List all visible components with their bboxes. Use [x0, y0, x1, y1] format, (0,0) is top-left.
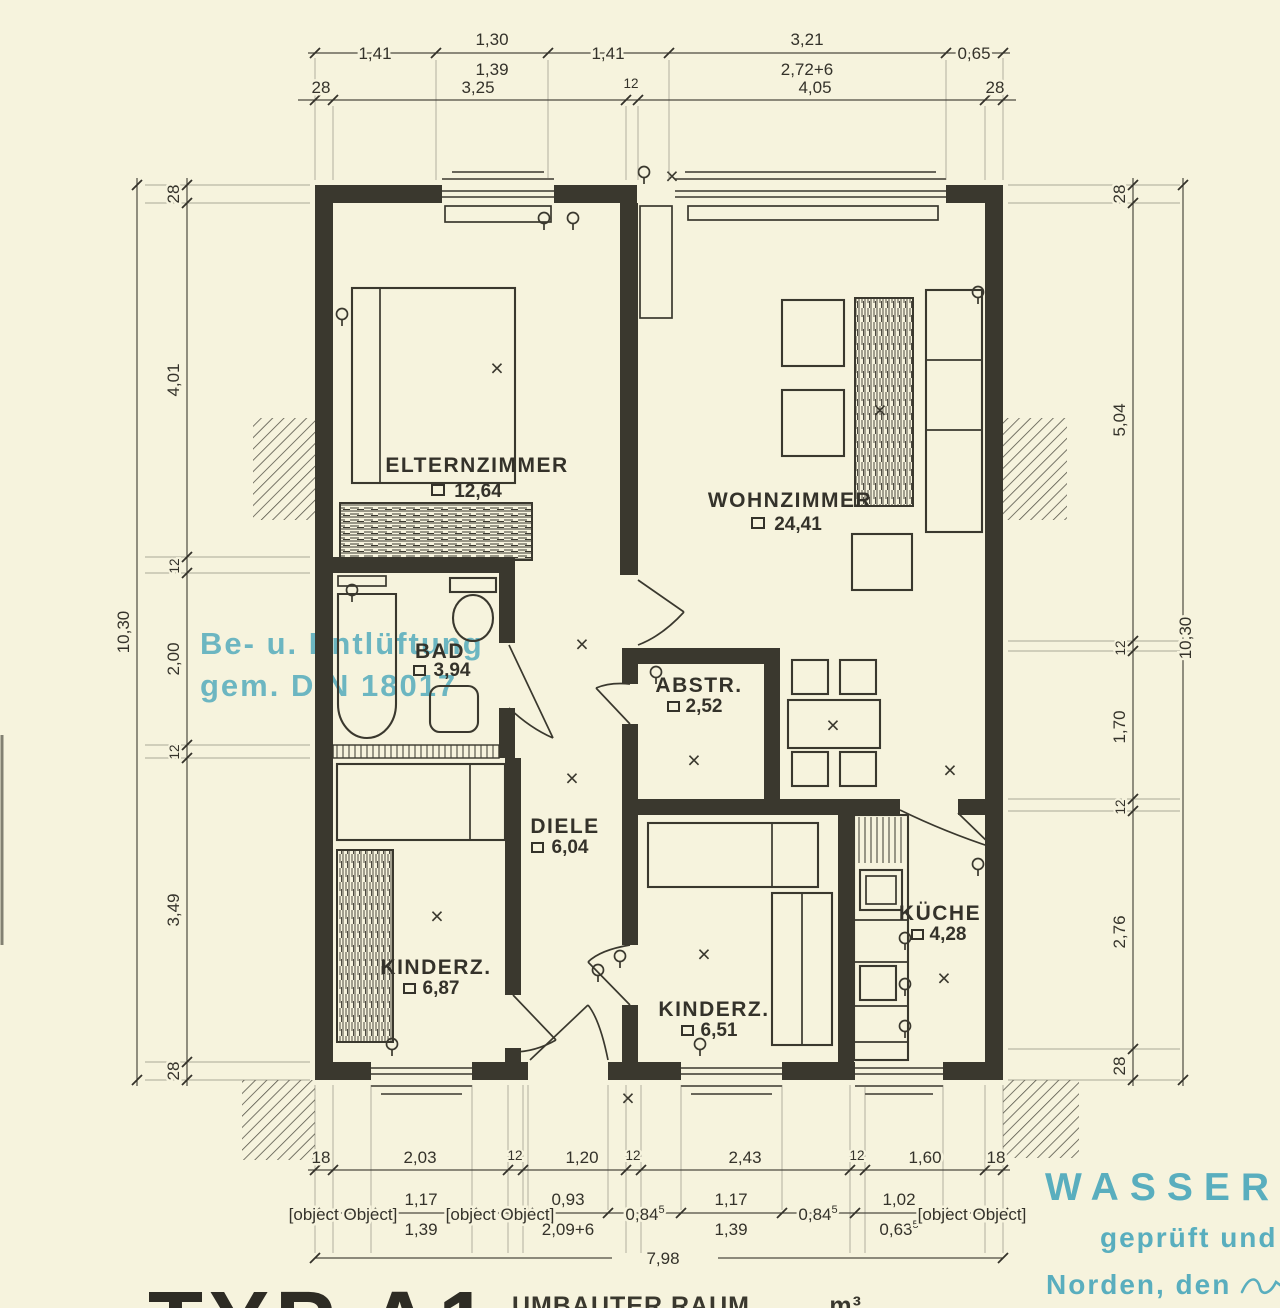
cabinet-wohn: [926, 290, 982, 532]
dim-label-total: 10,30: [114, 611, 133, 654]
door-wohnzimmer: [638, 580, 684, 645]
room-label-wohnzimmer: WOHNZIMMER 24,41: [708, 489, 872, 535]
window-elternzimmer: [442, 172, 554, 205]
dim-label: 2,09+6: [542, 1220, 594, 1239]
window-kueche: [855, 1060, 943, 1094]
stove: [860, 966, 896, 1000]
wall-mid-horizontal: [622, 799, 900, 815]
wall-abstr-right: [764, 648, 780, 815]
stamp-line1: geprüft und: [1100, 1222, 1278, 1253]
dimensions-top: 1,41 1,30 1,39 1,41 3,21 2,72+6 0,65 28 …: [298, 30, 1016, 180]
floor-mark: ×: [665, 163, 678, 189]
armchair-1: [782, 300, 844, 366]
floor-plan-drawing: Be- u. Entlüftung gem. DIN 18017: [0, 0, 1280, 1308]
dim-label: [object Object]: [289, 1205, 398, 1224]
room-area: 3,94: [434, 660, 471, 681]
floor-mark: ×: [565, 765, 578, 791]
room-label-abstr: ABSTR. 2,52: [655, 674, 742, 717]
wc-tank: [450, 578, 496, 592]
window-wohnzimmer: [675, 172, 946, 205]
dim-label: 0,635: [879, 1219, 918, 1239]
room-name: DIELE: [530, 815, 599, 838]
wall-mid-horizontal-jamb: [958, 799, 985, 815]
room-area: 6,87: [423, 978, 460, 999]
wall-kinderz1-diele-jamb: [505, 1048, 521, 1062]
wall-kinderz2-diele-lower: [622, 1005, 638, 1062]
wall-bad-right-lower: [499, 708, 515, 758]
ground-hatch-left: [253, 418, 315, 520]
furniture-wohnzimmer: [688, 206, 982, 590]
dim-label: 2,00: [164, 642, 183, 675]
wardrobe-kinderz1: [337, 850, 393, 1042]
ground-hatch-bottom-left: [242, 1080, 315, 1160]
dim-label: 28: [1110, 185, 1129, 204]
dim-label: 28: [164, 185, 183, 204]
wall-kueche-kinderz2: [838, 815, 854, 1062]
door-bad: [509, 645, 553, 738]
chair-3: [792, 752, 828, 786]
room-area: 4,28: [930, 924, 967, 945]
volume-note: UMBAUTER RAUM m³: [512, 1292, 862, 1308]
floor-mark: ×: [873, 397, 886, 423]
drainboard: [856, 817, 906, 863]
armchair-2: [782, 390, 844, 456]
floor-mark: ×: [943, 757, 956, 783]
dim-label: 1,30: [475, 30, 508, 49]
dim-label: 12: [849, 1148, 864, 1163]
wall-abstr-left-upper: [622, 664, 638, 684]
dim-label: 18: [312, 1148, 331, 1167]
door-abstr: [596, 684, 630, 725]
room-name: ELTERNZIMMER: [385, 454, 568, 477]
dim-label: 28: [164, 1062, 183, 1081]
furniture-kinderzimmer1: [337, 764, 505, 1042]
furniture-elternzimmer: [340, 206, 551, 560]
floor-mark: ×: [490, 355, 503, 381]
floor-mark: ×: [430, 903, 443, 929]
dim-label: 0,845: [625, 1204, 664, 1224]
room-area: 24,41: [774, 514, 822, 535]
ground-hatch-right: [1003, 418, 1067, 520]
dim-label: 12: [507, 1148, 522, 1163]
wall-bad-right-upper: [499, 573, 515, 643]
floor-mark: ×: [826, 712, 839, 738]
wall-left: [315, 185, 333, 1080]
dim-label: 4,05: [798, 78, 831, 97]
wall-kinderz1-diele-upper: [505, 758, 521, 995]
wall-kinderz2-diele-upper: [622, 815, 638, 945]
dim-label: 28: [986, 78, 1005, 97]
floor-mark: ×: [937, 965, 950, 991]
stamp-line2: Norden, den: [1046, 1269, 1231, 1300]
dim-label: 3,25: [461, 78, 494, 97]
chair-1: [792, 660, 828, 694]
room-area: 12,64: [454, 481, 502, 502]
dim-label: 28: [1110, 1057, 1129, 1076]
side-table-wohn: [852, 534, 912, 590]
dim-label: 1,39: [714, 1220, 747, 1239]
dim-label: 0,93: [551, 1190, 584, 1209]
radiator-eltern: [445, 206, 551, 222]
bathtub: [338, 594, 396, 738]
dim-label: 12: [167, 558, 182, 573]
room-label-kinderzimmer2: KINDERZ. 6,51: [658, 998, 769, 1041]
room-label-kinderzimmer1: KINDERZ. 6,87: [380, 956, 491, 999]
bed-kinderz2: [648, 823, 818, 887]
wall-abstr-left-lower: [622, 724, 638, 799]
handwritten-mark: [1242, 1280, 1280, 1293]
wall-right: [985, 185, 1003, 1080]
dim-label: 1,20: [565, 1148, 598, 1167]
dim-label: 1,39: [475, 60, 508, 79]
door-kueche: [900, 810, 994, 848]
dim-label: 1,39: [404, 1220, 437, 1239]
room-area: 6,04: [552, 837, 589, 858]
room-area: 2,52: [686, 696, 723, 717]
door-kinderz1: [513, 995, 556, 1052]
dim-label: 1,17: [404, 1190, 437, 1209]
radiator-wohn: [688, 206, 938, 220]
door-leaf-top: [640, 206, 672, 318]
dim-label-total: 7,98: [646, 1249, 679, 1268]
stamp-title: WASSERBE: [1045, 1166, 1280, 1209]
floor-mark: ×: [575, 631, 588, 657]
dim-label: 2,76: [1110, 915, 1129, 948]
dim-label: [object Object]: [918, 1205, 1027, 1224]
dim-label: 3,21: [790, 30, 823, 49]
dim-label: 12: [1113, 799, 1128, 814]
dim-label: 12: [1113, 640, 1128, 655]
dim-label: 1,70: [1110, 710, 1129, 743]
wall-abstr-top: [622, 648, 780, 664]
dim-label: 28: [312, 78, 331, 97]
floor-mark: ×: [697, 941, 710, 967]
bed-kinderz1: [337, 764, 505, 840]
dim-label: 2,72+6: [781, 60, 833, 79]
chair-2: [840, 660, 876, 694]
window-kinderzimmer1: [371, 1060, 472, 1094]
dim-label: 2,03: [403, 1148, 436, 1167]
bath-shelf: [338, 576, 386, 586]
room-name: ABSTR.: [655, 674, 742, 697]
room-name: WOHNZIMMER: [708, 489, 872, 512]
footer-titles: TYP A1 UMBAUTER RAUM m³: [148, 1274, 862, 1308]
floor-mark: ×: [687, 747, 700, 773]
room-name: KINDERZ.: [658, 998, 769, 1021]
dimensions-right: 28 5,04 12 1,70 12 2,76 28 10,30: [1008, 178, 1195, 1086]
stamp-block: WASSERBE geprüft und Norden, den: [1045, 1166, 1280, 1300]
dim-label: 1,17: [714, 1190, 747, 1209]
dim-label: 1,02: [882, 1190, 915, 1209]
wall-eltern-wohn: [620, 203, 638, 575]
dim-label: 5,04: [1110, 403, 1129, 436]
room-area: 6,51: [701, 1020, 738, 1041]
room-label-diele: DIELE 6,04: [530, 815, 599, 858]
chair-4: [840, 752, 876, 786]
door-top-entrance: [637, 185, 675, 318]
wall-bad-kinderz1-tiles: [333, 745, 499, 758]
ground-hatch-bottom-right: [1003, 1080, 1079, 1158]
room-label-elternzimmer: ELTERNZIMMER 12,64: [385, 454, 568, 502]
dim-label: 18: [987, 1148, 1006, 1167]
dim-label: [object Object]: [446, 1205, 555, 1224]
dim-label-total: 10,30: [1176, 617, 1195, 660]
type-label: TYP A1: [148, 1274, 494, 1308]
dim-label: 1,60: [908, 1148, 941, 1167]
door-bottom-entrance: [528, 1005, 608, 1082]
room-name: KÜCHE: [899, 902, 981, 925]
room-label-kueche: KÜCHE 4,28: [899, 902, 981, 945]
wardrobe-eltern: [340, 503, 532, 560]
dim-label: 4,01: [164, 363, 183, 396]
dimensions-bottom: 18 2,03 12 1,20 12 2,43 12 1,60 18 [obje…: [289, 1085, 1027, 1268]
dim-label: 0,65: [957, 44, 990, 63]
dim-label: 12: [625, 1148, 640, 1163]
room-label-bad: BAD 3,94: [414, 640, 471, 681]
dim-label: 2,43: [728, 1148, 761, 1167]
dim-label: 1,41: [591, 44, 624, 63]
dim-label: 12: [167, 744, 182, 759]
window-kinderzimmer2: [681, 1060, 782, 1094]
room-name: KINDERZ.: [380, 956, 491, 979]
floor-mark: ×: [621, 1085, 634, 1111]
dim-label: 12: [623, 76, 638, 91]
dim-label: 0,845: [798, 1204, 837, 1224]
dim-label: 1,41: [358, 44, 391, 63]
dim-label: 3,49: [164, 893, 183, 926]
